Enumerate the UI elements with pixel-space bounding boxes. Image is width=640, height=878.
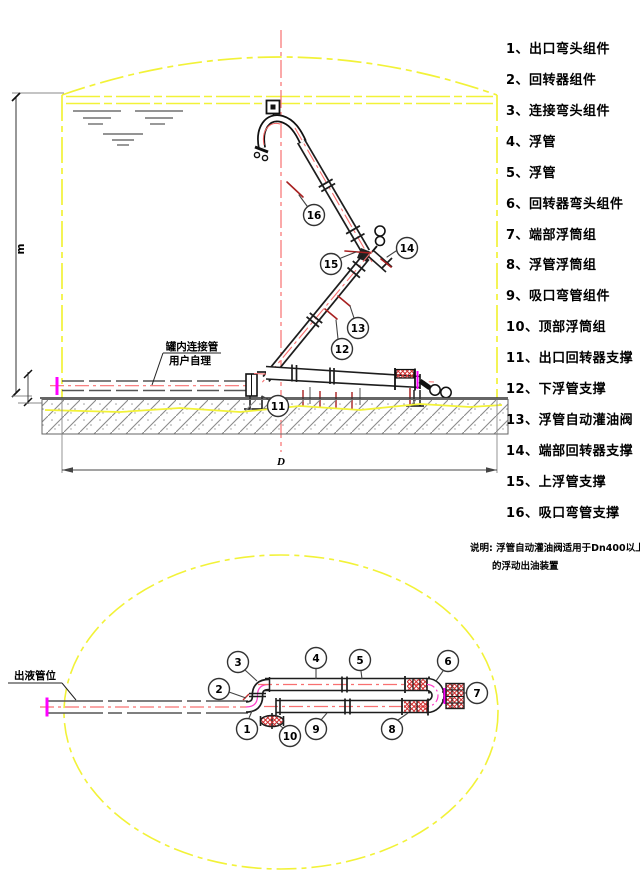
legend-item: 6、回转器弯头组件	[506, 198, 624, 212]
height-dimension: m	[12, 93, 64, 397]
callout-balloon-4: 4	[306, 648, 327, 680]
end-float-group	[442, 684, 464, 709]
callout-balloon-8: 8	[382, 713, 409, 740]
legend-item: 1、出口弯头组件	[506, 43, 610, 57]
callout-balloon-7: 7	[464, 683, 488, 704]
svg-text:1: 1	[243, 724, 250, 736]
callout-balloon-6: 6	[436, 651, 459, 682]
liquid-level-symbol	[73, 111, 183, 145]
svg-text:16: 16	[307, 210, 322, 222]
svg-text:5: 5	[356, 655, 363, 667]
legend-item: 13、浮管自动灌油阀	[506, 414, 633, 428]
legend-item: 5、浮管	[506, 167, 556, 181]
legend-item: 11、出口回转器支撑	[506, 352, 633, 366]
legend-item: 15、上浮管支撑	[506, 476, 606, 490]
svg-text:11: 11	[271, 401, 286, 413]
tank-internal-pipe	[50, 377, 256, 395]
svg-text:14: 14	[400, 243, 415, 255]
svg-text:8: 8	[388, 724, 395, 736]
note-line-1: 说明: 浮管自动灌油阀适用于Dn400以上	[470, 540, 640, 554]
elevation-view: m 罐内连接管 用户自理	[12, 30, 508, 473]
svg-text:10: 10	[283, 731, 298, 743]
legend-item: 10、顶部浮筒组	[506, 321, 606, 335]
legend-item: 9、吸口弯管组件	[506, 290, 610, 304]
suction-gooseneck	[254, 118, 303, 160]
svg-text:3: 3	[234, 657, 241, 669]
callout-balloon-2: 2	[209, 679, 247, 700]
callout-balloon-10: 10	[277, 723, 301, 747]
callout-balloon-5: 5	[350, 650, 371, 680]
floating-pipe-elevation	[254, 365, 434, 391]
legend-item: 4、浮管	[506, 136, 556, 150]
legend-item: 3、连接弯头组件	[506, 105, 610, 119]
svg-text:9: 9	[312, 724, 319, 736]
diameter-dim-label: D	[276, 456, 285, 468]
inlet-pipe-plan	[40, 698, 253, 717]
callout-balloon-9: 9	[306, 713, 328, 740]
internal-pipe-label-line2: 用户自理	[168, 354, 211, 367]
tank-dome	[62, 57, 497, 95]
legend-item: 7、端部浮筒组	[506, 229, 597, 243]
callout-balloon-16: 16	[287, 182, 325, 226]
svg-text:15: 15	[324, 259, 339, 271]
legend-item: 14、端部回转器支撑	[506, 445, 633, 459]
note-line-2: 的浮动出油装置	[492, 558, 559, 572]
internal-pipe-label: 罐内连接管 用户自理	[152, 340, 221, 385]
callout-balloon-1: 1	[237, 711, 258, 740]
height-dim-label: m	[15, 243, 27, 254]
upper-pipe-plan	[258, 676, 429, 694]
svg-text:4: 4	[312, 653, 319, 665]
svg-text:12: 12	[335, 344, 350, 356]
callout-balloon-14: 14	[381, 238, 418, 268]
outlet-label: 出液管位	[14, 669, 56, 682]
drain-valve-plan	[261, 713, 284, 729]
legend-item: 2、回转器组件	[506, 74, 597, 88]
legend-item: 12、下浮管支撑	[506, 383, 606, 397]
technical-drawing: m 罐内连接管 用户自理	[0, 0, 640, 874]
svg-text:6: 6	[444, 656, 451, 668]
internal-pipe-label-line1: 罐内连接管	[165, 340, 219, 353]
drawing-page: { "legend": { "items": [ "1、出口弯头组件", "2、…	[0, 0, 640, 874]
callout-balloon-13: 13	[338, 296, 369, 339]
callout-balloon-12: 12	[325, 309, 353, 360]
plan-view: 出液管位	[8, 555, 498, 869]
rotary-joint	[357, 226, 392, 272]
svg-text:13: 13	[351, 323, 366, 335]
svg-text:7: 7	[473, 688, 480, 700]
legend-item: 16、吸口弯管支撑	[506, 507, 620, 521]
upper-inclined-pipe	[295, 128, 372, 262]
u-bend-plan	[427, 679, 444, 713]
callout-balloon-3: 3	[228, 652, 258, 682]
inlet-elbow-group	[243, 685, 269, 708]
svg-text:2: 2	[215, 684, 222, 696]
lower-pipe-plan	[264, 698, 428, 716]
pipe-height-dimension	[18, 370, 42, 406]
legend-item: 8、浮管浮筒组	[506, 259, 597, 273]
